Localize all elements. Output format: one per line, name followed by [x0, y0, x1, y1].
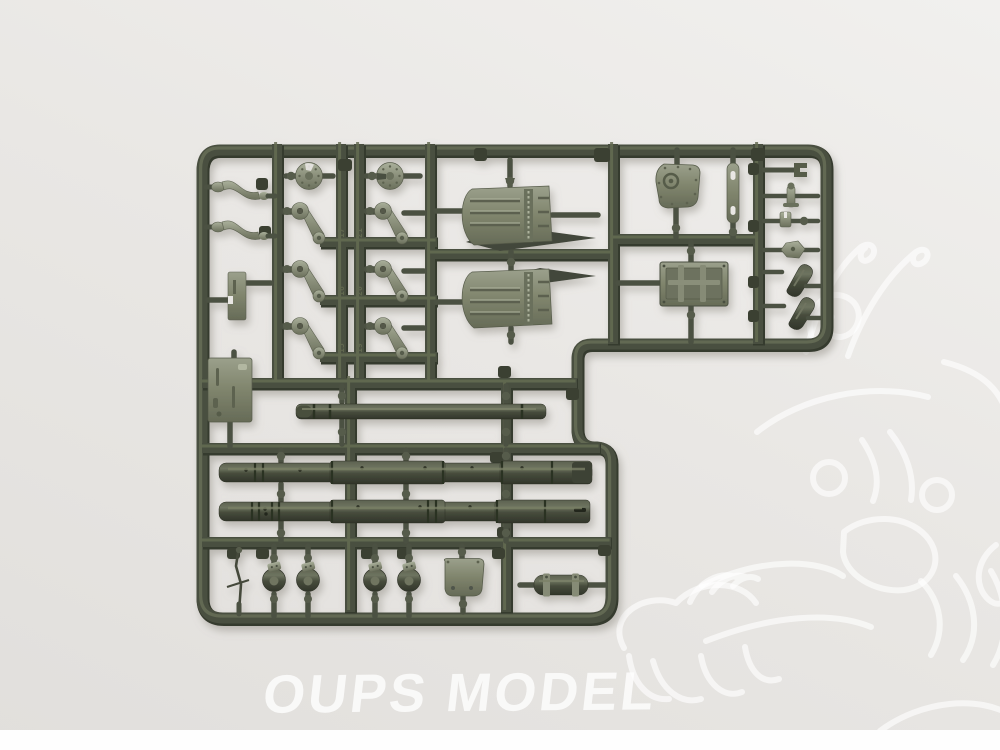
small-fittings-column	[764, 163, 820, 330]
sprue-photo: 17 21 16 20 15 19	[0, 0, 1000, 750]
wheel-disc-part	[377, 163, 404, 190]
wheel-disc-part	[296, 163, 323, 190]
part-number-label: 16	[337, 286, 346, 296]
part-number-label: 20	[355, 286, 364, 296]
access-panel-part	[208, 358, 252, 422]
dragon-nose-bridge	[862, 432, 912, 501]
dragon-curl-right	[979, 545, 1000, 604]
bottom-white-strip	[0, 730, 1000, 750]
part-number-label: 19	[355, 343, 364, 353]
suspension-arm-part	[283, 261, 325, 303]
dragon-brow	[757, 391, 928, 432]
hook-fitting-part	[764, 264, 820, 296]
dragon-eye-left	[813, 462, 845, 494]
knuckle-fitting-part	[764, 241, 818, 258]
barrel-clamp-part	[297, 546, 320, 616]
watermark-brand-text: OUPS MODEL	[246, 660, 674, 726]
rear-door-part	[660, 262, 728, 306]
part-number-label: 17	[337, 228, 346, 238]
turnbuckle-fitting-part	[764, 183, 818, 208]
base-plate-part	[444, 559, 484, 597]
hatch-cover-part	[656, 164, 700, 208]
sprue: 17 21 16 20 15 19	[201, 142, 827, 620]
clip-fitting-part	[764, 212, 818, 227]
gun-barrel-long-part	[219, 500, 590, 523]
dragon-antenna-right	[848, 250, 928, 356]
suspension-arm-part	[283, 203, 325, 245]
fork-fitting-part	[764, 163, 807, 177]
dragon-fist	[619, 585, 756, 648]
dragon-eye-right	[922, 480, 952, 510]
exhaust-cylinder-part	[534, 574, 588, 597]
part-number-label: 15	[337, 343, 346, 353]
gun-barrel-long-part	[219, 461, 592, 484]
dragon-head-edge	[944, 362, 1000, 418]
fender-part	[462, 268, 596, 328]
dragon-arm	[706, 618, 871, 641]
part-number-label: 21	[355, 228, 364, 238]
fender-part	[462, 186, 596, 251]
small-plate-part	[228, 272, 246, 320]
dragon-tail	[880, 703, 1000, 731]
dragon-fur-arm	[921, 571, 1000, 665]
suspension-arm-part	[283, 318, 325, 360]
hinge-strip-part	[727, 163, 739, 223]
product-photo: 17 21 16 20 15 19 OUPS MODEL	[0, 0, 1000, 750]
gun-barrel-short-part	[296, 404, 546, 419]
